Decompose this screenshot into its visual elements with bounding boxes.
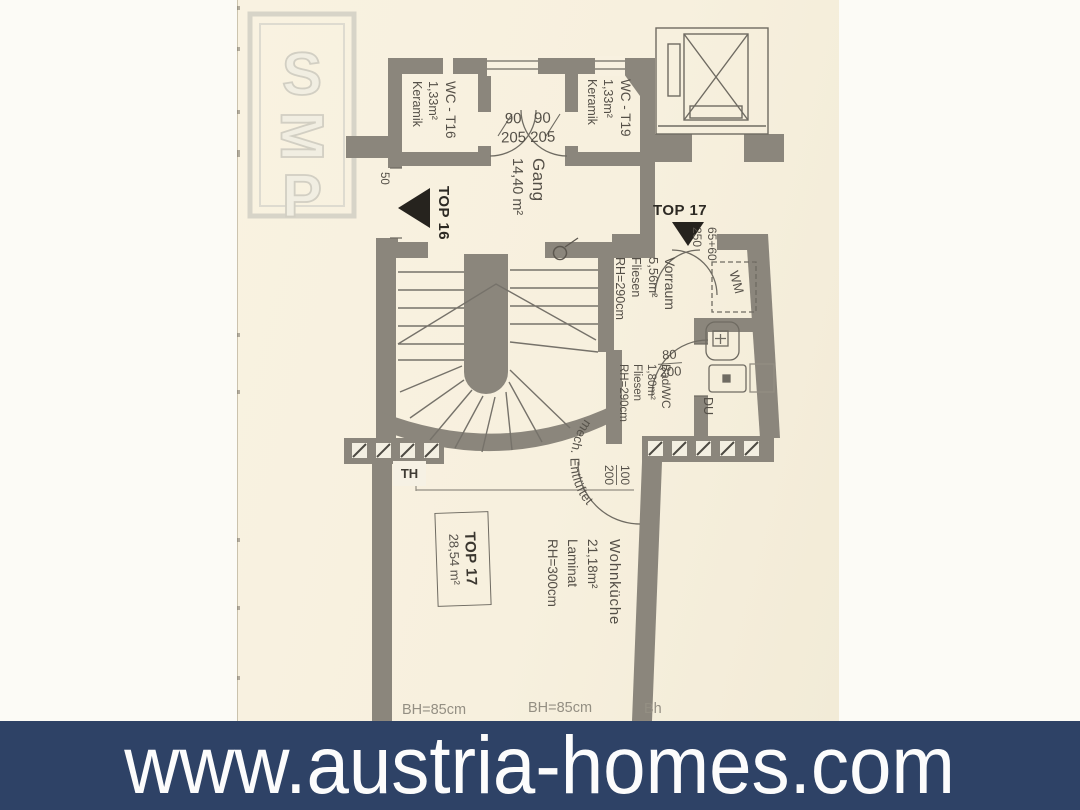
watermark-letter-m: M xyxy=(269,111,336,161)
th-box: TH xyxy=(393,461,426,486)
floorplan-page: S M P xyxy=(0,0,1080,810)
sill-height-label: Bh xyxy=(644,701,662,717)
room-label-gang: Gang 14,40 m² xyxy=(507,158,550,215)
watermark-letter-s: S xyxy=(282,41,322,108)
door-dim-wohnkueche: 100 200 xyxy=(601,465,632,485)
room-label-bad: Bad/WC 1,80m² Fliesen RH=290cm xyxy=(616,364,673,422)
room-label-wc-t19: WC - T19 1,33m² Keramik xyxy=(584,79,634,137)
door-dim-top17: 65+60 250 xyxy=(689,227,719,261)
staircase xyxy=(398,238,598,452)
sill-height-label: BH=85cm xyxy=(402,702,466,718)
smp-watermark: S M P xyxy=(250,14,354,230)
door-dim-wc: 90 90 205 205 xyxy=(488,109,569,148)
watermark-letter-p: P xyxy=(282,163,322,230)
room-label-vorraum: Vorraum 5,56m² Fliesen RH=290cm xyxy=(611,257,679,320)
door-label-top17: TOP 17 xyxy=(653,201,707,221)
door-dim-top16: 50 xyxy=(376,172,391,185)
top16-door-triangle xyxy=(398,188,430,228)
sill-height-label: BH=85cm xyxy=(528,700,592,716)
unit-label-top17: TOP 17 28,54 m² xyxy=(434,511,491,607)
elevator-shaft xyxy=(656,28,768,134)
stair-core xyxy=(464,254,508,394)
website-url: www.austria-homes.com xyxy=(125,719,956,810)
shower-label: DU xyxy=(700,397,716,415)
elevator-x-icon xyxy=(684,34,748,120)
floorplan-drawing: S M P xyxy=(0,0,1080,721)
door-label-top16: TOP 16 xyxy=(434,186,454,240)
room-label-wc-t16: WC - T16 1,33m² Keramik xyxy=(409,81,459,139)
room-label-wohnkueche: Wohnküche 21,18m² Laminat RH=300cm xyxy=(542,539,625,625)
website-banner: www.austria-homes.com xyxy=(0,721,1080,810)
